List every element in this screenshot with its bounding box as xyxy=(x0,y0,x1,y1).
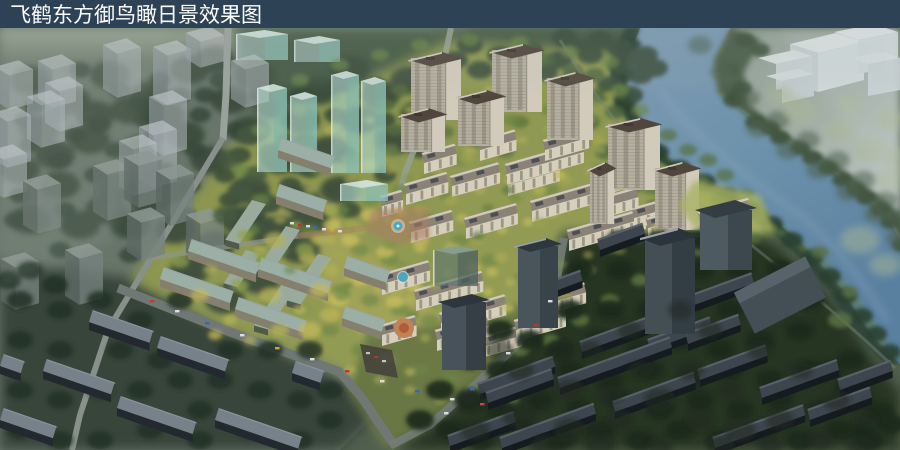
svg-text:飞鹤东方御鸟瞰日景效果图: 飞鹤东方御鸟瞰日景效果图 xyxy=(10,4,262,27)
